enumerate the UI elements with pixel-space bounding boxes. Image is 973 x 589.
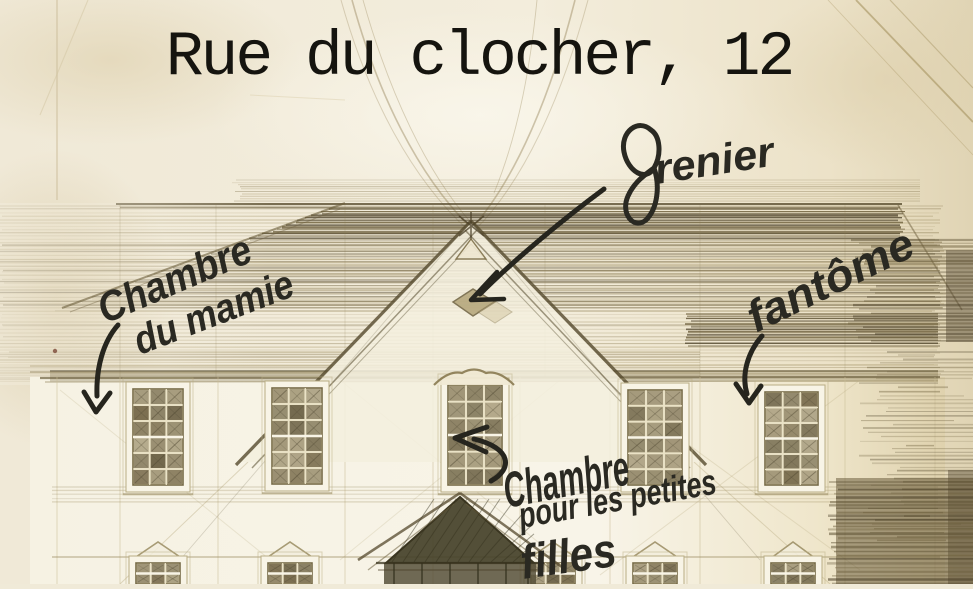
svg-text:Rue du clocher, 12: Rue du clocher, 12: [166, 22, 793, 93]
